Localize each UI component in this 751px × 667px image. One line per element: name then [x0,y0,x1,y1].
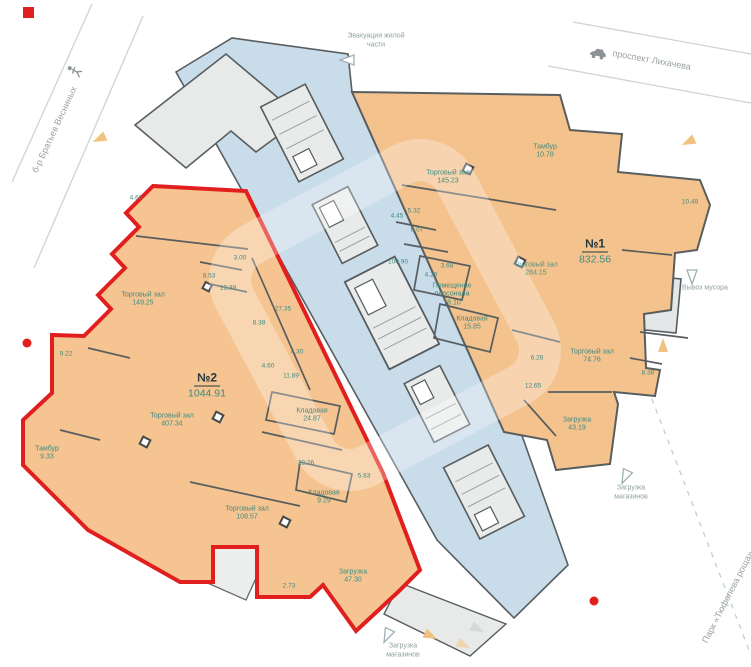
loading-bottom-note: Загрузка магазинов [372,642,434,660]
dim-label: 6.07 [411,227,424,234]
dim-label: 5.83 [358,473,371,480]
dim-label: 100.90 [388,259,408,266]
dim-label: 6.26 [531,355,544,362]
dim-label: 27.35 [275,306,291,313]
dim-label: 9.22 [60,351,73,358]
room-label: Тамбур9.33 [35,446,59,463]
unit1-title[interactable]: №1 832.56 [579,235,611,266]
trash-arrow-icon [687,270,697,284]
room-label: Торговый зал74.76 [570,349,614,366]
dim-label: 4.66 [130,195,143,202]
room-label: Загрузка47.30 [339,569,367,586]
dim-label: 12.65 [525,383,541,390]
loading-right-arrow-icon [618,469,633,486]
red-dot-marker-left [23,339,32,348]
dim-label: 4.60 [262,363,275,370]
dim-label: 12.39 [220,285,236,292]
pedestrian-icon [66,64,83,77]
room-label: Загрузка43.19 [563,417,591,434]
dim-label: 8.38 [253,320,266,327]
room-label: Торговый зал407.34 [150,413,194,430]
dim-label: 4.30 [291,349,304,356]
room-label: Кладовая15.85 [456,316,487,333]
car-icon [589,48,606,60]
room-label: Торговый зал108.57 [225,506,269,523]
dim-label: 8.38 [642,370,655,377]
dim-label: 3.00 [234,255,247,262]
trash-note: Вывоз мусора [681,285,729,294]
dim-label: 11.89 [283,373,299,380]
dim-label: 22.26 [298,460,314,467]
room-label: Кладовая9.29 [308,490,339,507]
road-bulvar-lines [12,4,143,268]
dim-label: 3.68 [441,263,454,270]
unit2-title[interactable]: №2 1044.91 [188,369,226,400]
dim-label: 8.53 [203,273,216,280]
dim-label: 10.49 [682,199,698,206]
room-label: Тамбур10.78 [533,144,557,161]
evacuation-note: Эвакуация жилой части [345,32,407,50]
room-label: Торговый зал149.25 [121,292,165,309]
dim-label: 4.45 [391,213,404,220]
dim-label: 5.32 [408,208,421,215]
room-label: Торговый зал145.23 [426,170,470,187]
floor-plan-page: проспект Лихачева б-р Братьев Весниных П… [0,0,751,667]
loading-right-note: Загрузка магазинов [600,484,662,502]
room-label: Торговый зал284.15 [514,262,558,279]
red-dot-marker-bottom [590,597,599,606]
red-square-marker [23,7,34,18]
room-label: Помещение персонала18.10 [425,282,479,307]
dim-label: 2.73 [283,583,296,590]
floor-plan-drawing [0,0,751,667]
dim-label: 4.29 [425,272,438,279]
room-label: Кладовая24.87 [296,408,327,425]
